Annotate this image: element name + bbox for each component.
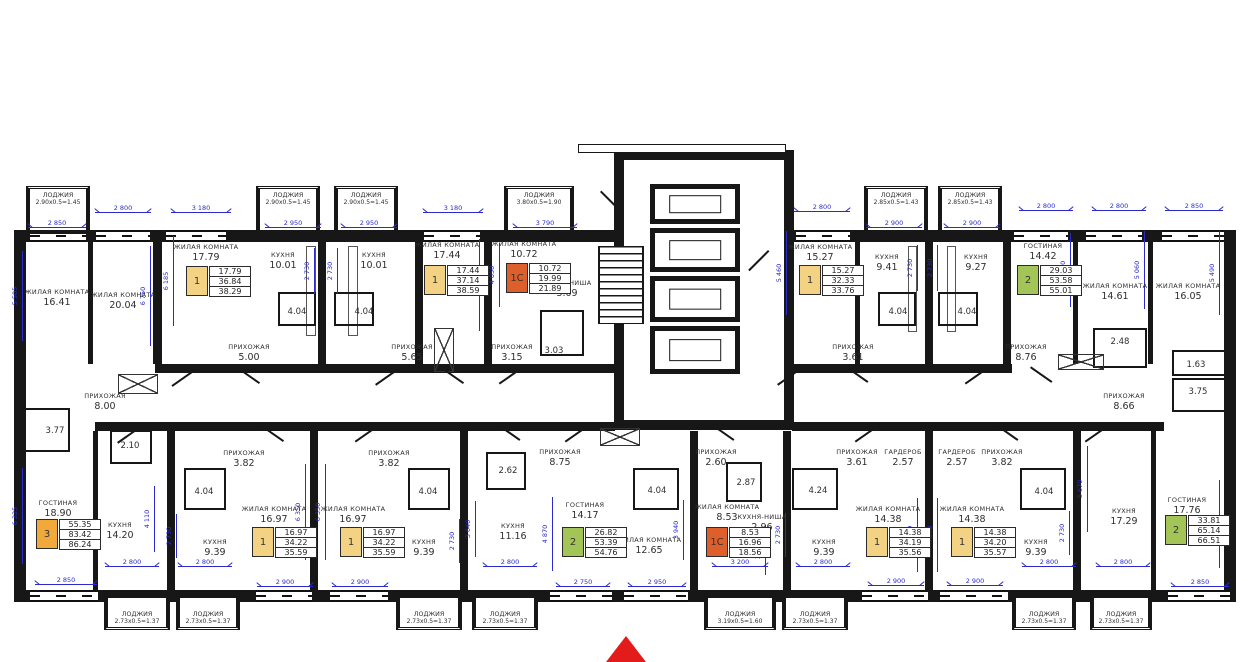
room-label: КУХНЯ11.16: [499, 522, 526, 542]
room-name: ПРИХОЖАЯ: [695, 448, 737, 456]
apartment-info-badge: 117.4437.1438.59: [424, 265, 489, 295]
dimension-line: 2 900: [332, 586, 388, 587]
room-label: ПРИХОЖАЯ3.61: [832, 343, 874, 363]
room-area: 14.61: [1083, 291, 1148, 302]
apartment-info-badge: 116.9734.2235.59: [252, 527, 317, 557]
area-value: 35.59: [275, 547, 317, 558]
room-name: ЖИЛАЯ КОМНАТА: [1083, 282, 1148, 290]
room-label: ПРИХОЖАЯ3.82: [223, 449, 265, 469]
room-name: ЖИЛАЯ КОМНАТА: [695, 503, 760, 511]
dimension-line: 3 180: [171, 212, 231, 213]
dimension-line: 2 900: [947, 585, 1003, 586]
dimension-line: 2 950: [265, 227, 321, 228]
room-label: ПРИХОЖАЯ8.75: [539, 448, 581, 468]
dimension-label: 5 670: [1076, 480, 1084, 499]
loggia-label: ЛОДЖИЯ2.85x0.5=1.43: [868, 192, 924, 206]
dimension-line: 3 940: [683, 500, 684, 560]
room-label: 2.10: [121, 441, 140, 451]
loggia-label: ЛОДЖИЯ2.85x0.5=1.43: [942, 192, 998, 206]
dimension-label: 2 730: [303, 262, 311, 281]
room-area: 4.04: [648, 486, 667, 496]
apartment-type: 1: [340, 527, 362, 557]
loggia: ЛОДЖИЯ2.73x0.5=1.37: [1012, 594, 1076, 630]
apartment-areas: 29.0353.5855.01: [1040, 265, 1082, 295]
room-name: КУХНЯ: [875, 253, 899, 261]
loggia: ЛОДЖИЯ2.73x0.5=1.37: [472, 594, 538, 630]
room-area: 4.04: [355, 307, 374, 317]
window: [796, 230, 850, 242]
loggia-label: ЛОДЖИЯ3.80x0.5=1.90: [508, 192, 570, 206]
room-name: ЖИЛАЯ КОМНАТА: [1156, 282, 1221, 290]
elevator-equipment: [669, 195, 721, 213]
room-name: КУХНЯ: [106, 521, 133, 529]
room-area: 5.65: [391, 352, 433, 363]
wall: [93, 431, 98, 590]
room-label: ГОСТИНАЯ17.76: [1168, 496, 1207, 516]
window: [862, 590, 928, 602]
apartment-info-badge: 114.3834.1935.56: [866, 527, 931, 557]
room-area: 4.04: [419, 487, 438, 497]
room-name: КУХНЯ: [499, 522, 526, 530]
room-label: ЖИЛАЯ КОМНАТА17.79: [174, 243, 239, 263]
dimension-label: 3 180: [192, 204, 211, 212]
room-area: 4.04: [288, 307, 307, 317]
window: [256, 590, 312, 602]
room-area: 1.63: [1187, 360, 1206, 370]
room-area: 9.39: [1024, 547, 1048, 558]
area-value: 33.76: [822, 285, 864, 296]
area-value: 35.56: [889, 547, 931, 558]
dimension-label: 2 900: [887, 577, 906, 585]
apartment-type: 1: [424, 265, 446, 295]
dimension-line: 2 950: [628, 586, 686, 587]
apartment-areas: 17.4437.1438.59: [447, 265, 489, 295]
wall: [792, 422, 1164, 431]
dimension-line: 2 800: [178, 566, 232, 567]
room-label: ЖИЛАЯ КОМНАТА20.04: [91, 291, 156, 311]
room-label: 2.62: [499, 466, 518, 476]
door-swing: [748, 250, 769, 271]
window: [166, 230, 226, 242]
room-name: ПРИХОЖАЯ: [491, 343, 533, 351]
room-name: ЖИЛАЯ КОМНАТА: [174, 243, 239, 251]
wardrobe-symbol: [434, 328, 454, 372]
apartment-areas: 17.7936.8438.29: [209, 266, 251, 296]
room-name: КУХНЯ: [812, 538, 836, 546]
wardrobe-symbol: [1058, 354, 1104, 370]
dimension-label: 6 325: [11, 507, 19, 526]
room-label: КУХНЯ14.20: [106, 521, 133, 541]
dimension-label: 2 800: [1110, 202, 1129, 210]
window: [1086, 230, 1142, 242]
apartment-info-badge: 229.0353.5855.01: [1017, 265, 1082, 295]
apartment-areas: 10.7219.9921.89: [529, 263, 571, 293]
room-area: 16.41: [25, 297, 90, 308]
room-area: 3.82: [981, 457, 1023, 468]
room-name: ЖИЛАЯ КОМНАТА: [492, 240, 557, 248]
dimension-label: 2 900: [963, 219, 982, 227]
room-label: ПРИХОЖАЯ5.00: [228, 343, 270, 363]
dimension-label: 3 180: [444, 204, 463, 212]
room-area: 10.01: [269, 260, 296, 271]
room-label: 4.04: [958, 307, 977, 317]
apartment-areas: 14.3834.1935.56: [889, 527, 931, 557]
room-name: КУХНЯ: [964, 253, 988, 261]
dimension-label: 2 750: [574, 578, 593, 586]
window: [940, 590, 1008, 602]
room-area: 2.87: [737, 478, 756, 488]
apartment-type: 1: [186, 266, 208, 296]
room-name: ГАРДЕРОБ: [938, 448, 975, 456]
room-name: КУХНЯ: [203, 538, 227, 546]
room-area: 20.04: [91, 300, 156, 311]
loggia-label: ЛОДЖИЯ2.73x0.5=1.37: [400, 611, 458, 625]
room-area: 4.04: [195, 487, 214, 497]
room-area: 2.48: [1111, 337, 1130, 347]
apartment-areas: 16.9734.2235.59: [363, 527, 405, 557]
room-label: 4.04: [195, 487, 214, 497]
dimension-label: 2 900: [351, 578, 370, 586]
dimension-line: 2 900: [944, 227, 1000, 228]
window: [1162, 230, 1224, 242]
room-label: ЖИЛАЯ КОМНАТА15.27: [788, 243, 853, 263]
apartment-info-badge: 233.8165.1466.51: [1165, 515, 1230, 545]
wall: [1073, 242, 1078, 364]
room-area: 9.39: [203, 547, 227, 558]
room-area: 8.76: [1005, 352, 1047, 363]
loggia-label: ЛОДЖИЯ2.90x0.5=1.45: [260, 192, 316, 206]
room-area: 9.27: [964, 262, 988, 273]
room-label: ЖИЛАЯ КОМНАТА14.38: [856, 505, 921, 525]
dimension-line: 2 900: [257, 586, 313, 587]
dimension-line: 2 850: [1171, 586, 1229, 587]
dimension-line: 2 850: [1165, 210, 1223, 211]
room-label: 4.24: [809, 486, 828, 496]
room-name: ПРИХОЖАЯ: [539, 448, 581, 456]
room-name: ЖИЛАЯ КОМНАТА: [321, 505, 386, 513]
room-label: ПРИХОЖАЯ2.60: [695, 448, 737, 468]
loggia-label: ЛОДЖИЯ3.19x0.5=1.60: [708, 611, 772, 625]
room-name: ЖИЛАЯ КОМНАТА: [788, 243, 853, 251]
window: [96, 230, 150, 242]
room-name: ГОСТИНАЯ: [1024, 242, 1063, 250]
dimension-line: 2 750: [556, 586, 610, 587]
apartment-areas: 14.3834.2035.57: [974, 527, 1016, 557]
dimension-line: 2 800: [483, 566, 537, 567]
dimension-line: 2 900: [868, 585, 924, 586]
dimension-line: 2 800: [796, 566, 850, 567]
room-area: 9.39: [812, 547, 836, 558]
room-label: ПРИХОЖАЯ8.00: [84, 392, 126, 412]
dimension-label: 2 850: [1185, 202, 1204, 210]
dimension-label: 2 730: [165, 527, 173, 546]
loggia-label: ЛОДЖИЯ2.73x0.5=1.37: [786, 611, 844, 625]
room-label: КУХНЯ17.29: [1110, 507, 1137, 527]
area-value: 35.59: [363, 547, 405, 558]
dimension-line: 2 900: [866, 227, 922, 228]
room-area: 11.16: [499, 531, 526, 542]
room-label: ПРИХОЖАЯ3.82: [981, 448, 1023, 468]
room-name: КУХНЯ: [360, 251, 387, 259]
room-area: 16.05: [1156, 291, 1221, 302]
window: [550, 590, 612, 602]
room-label: ГОСТИНАЯ14.17: [566, 501, 605, 521]
staircase: [598, 246, 644, 324]
room-area: 18.90: [39, 508, 78, 519]
room-area: 3.03: [545, 346, 564, 356]
apartment-type: 1: [866, 527, 888, 557]
dimension-label: 5 505: [11, 287, 19, 306]
room-label: КУХНЯ9.39: [412, 538, 436, 558]
dimension-line: 2 730: [314, 248, 315, 294]
room-area: 16.97: [242, 514, 307, 525]
loggia-label: ЛОДЖИЯ2.73x0.5=1.37: [1094, 611, 1148, 625]
room-label: ПРИХОЖАЯ8.66: [1103, 392, 1145, 412]
dimension-label: 2 950: [360, 219, 379, 227]
dimension-label: 2 800: [1037, 202, 1056, 210]
area-value: 55.01: [1040, 285, 1082, 296]
room-area: 17.44: [415, 250, 480, 261]
room-name: ПРИХОЖАЯ: [223, 449, 265, 457]
room-name: ПРИХОЖАЯ: [391, 343, 433, 351]
apartment-type: 2: [1017, 265, 1039, 295]
room-area: 14.42: [1024, 251, 1063, 262]
apartment-info-badge: 226.8253.3954.76: [562, 527, 627, 557]
area-value: 38.29: [209, 286, 251, 297]
dimension-line: 3 180: [423, 212, 483, 213]
loggia: ЛОДЖИЯ2.73x0.5=1.37: [104, 594, 170, 630]
wall: [460, 431, 468, 590]
wall: [1224, 230, 1236, 602]
room-label: ЖИЛАЯ КОМНАТА16.97: [242, 505, 307, 525]
room-label: КУХНЯ9.39: [203, 538, 227, 558]
room-area: 16.97: [321, 514, 386, 525]
apartment-areas: 55.3583.4286.24: [59, 519, 101, 549]
room-label: ЖИЛАЯ КОМНАТА14.38: [940, 505, 1005, 525]
dimension-label: 2 730: [906, 259, 914, 278]
window: [1168, 590, 1230, 602]
dimension-line: 3 200: [712, 566, 768, 567]
room-label: ЖИЛАЯ КОМНАТА16.05: [1156, 282, 1221, 302]
window: [1014, 230, 1068, 242]
loggia-label: ЛОДЖИЯ2.90x0.5=1.45: [338, 192, 394, 206]
room-name: ЖИЛАЯ КОМНАТА: [242, 505, 307, 513]
apartment-info-badge: 355.3583.4286.24: [36, 519, 101, 549]
dimension-line: 2 800: [1096, 566, 1150, 567]
room-area: 15.27: [788, 252, 853, 263]
room-label: ПРИХОЖАЯ5.65: [391, 343, 433, 363]
apartment-areas: 8.5316.9618.56: [729, 527, 771, 557]
dimension-line: 3 790: [513, 227, 577, 228]
elevator-shaft: [650, 228, 740, 272]
loggia-label: ЛОДЖИЯ2.73x0.5=1.37: [108, 611, 166, 625]
area-value: 86.24: [59, 539, 101, 550]
room-area: 14.17: [566, 510, 605, 521]
room-label: 4.04: [1035, 487, 1054, 497]
loggia: ЛОДЖИЯ3.19x0.5=1.60: [704, 594, 776, 630]
dimension-line: 4 110: [154, 486, 155, 552]
room-name: КУХНЯ-НИША: [738, 513, 787, 521]
room-area: 8.66: [1103, 401, 1145, 412]
room-label: ГАРДЕРОБ2.57: [938, 448, 975, 468]
window: [330, 590, 388, 602]
loggia-label: ЛОДЖИЯ2.90x0.5=1.45: [30, 192, 86, 206]
room-area: 2.60: [695, 457, 737, 468]
room-name: ГОСТИНАЯ: [1168, 496, 1207, 504]
room-area: 10.01: [360, 260, 387, 271]
room-name: КУХНЯ: [269, 251, 296, 259]
room-label: 1.63: [1187, 360, 1206, 370]
dimension-label: 2 850: [1191, 578, 1210, 586]
dimension-label: 6 185: [162, 272, 170, 291]
dimension-line: 2 730: [1069, 511, 1070, 555]
dimension-line: 2 800: [1019, 210, 1073, 211]
dimension-line: 2 730: [917, 245, 918, 291]
room-label: ЖИЛАЯ КОМНАТА16.41: [25, 288, 90, 308]
room-label: ГОСТИНАЯ18.90: [39, 499, 78, 519]
room-name: ПРИХОЖАЯ: [836, 448, 878, 456]
dimension-label: 2 800: [813, 203, 832, 211]
dimension-line: 2 850: [28, 227, 86, 228]
dimension-label: 2 800: [114, 204, 133, 212]
dimension-line: 5 490: [1219, 231, 1220, 315]
dimension-line: 4 870: [552, 497, 553, 571]
window: [624, 590, 688, 602]
dimension-line: 4 870: [937, 498, 938, 572]
room-name: ЖИЛАЯ КОМНАТА: [940, 505, 1005, 513]
dimension-label: 2 730: [448, 532, 456, 551]
apartment-type: 1: [951, 527, 973, 557]
room-area: 17.29: [1110, 516, 1137, 527]
wall: [167, 431, 175, 590]
room-area: 3.75: [1189, 387, 1208, 397]
room-area: 2.57: [938, 457, 975, 468]
dimension-line: 2 800: [1092, 210, 1146, 211]
room-label: ЖИЛАЯ КОМНАТА14.61: [1083, 282, 1148, 302]
room-name: ПРИХОЖАЯ: [368, 449, 410, 457]
dimension-line: 2 730: [937, 245, 938, 291]
wall: [155, 364, 615, 373]
apartment-type: 1С: [706, 527, 728, 557]
room-name: ЖИЛАЯ КОМНАТА: [415, 241, 480, 249]
room-name: ПРИХОЖАЯ: [84, 392, 126, 400]
room-label: КУХНЯ9.39: [812, 538, 836, 558]
dimension-label: 2 800: [501, 558, 520, 566]
dimension-line: 2 800: [95, 212, 151, 213]
room-area: 4.04: [1035, 487, 1054, 497]
wall: [925, 431, 933, 590]
room-area: 3.77: [46, 426, 65, 436]
area-value: 18.56: [729, 547, 771, 558]
room-label: КУХНЯ10.01: [269, 251, 296, 271]
dimension-line: 2 800: [1022, 566, 1076, 567]
apartment-areas: 16.9734.2235.59: [275, 527, 317, 557]
room-label: 4.04: [419, 487, 438, 497]
loggia: ЛОДЖИЯ2.73x0.5=1.37: [176, 594, 240, 630]
room-label: КУХНЯ10.01: [360, 251, 387, 271]
dimension-label: 5 490: [1208, 264, 1216, 283]
door-swing: [1030, 367, 1052, 383]
room-name: ПРИХОЖАЯ: [1005, 343, 1047, 351]
room-area: 5.00: [228, 352, 270, 363]
room-area: 14.20: [106, 530, 133, 541]
apartment-type: 3: [36, 519, 58, 549]
room-label: КУХНЯ9.39: [1024, 538, 1048, 558]
elevator-cabin: [669, 339, 721, 361]
dimension-label: 2 800: [1114, 558, 1133, 566]
roof-parapet-outline: [578, 144, 786, 153]
apartment-info-badge: 1С10.7219.9921.89: [506, 263, 571, 293]
room-name: ПРИХОЖАЯ: [832, 343, 874, 351]
loggia-label: ЛОДЖИЯ2.73x0.5=1.37: [476, 611, 534, 625]
room-label: ПРИХОЖАЯ3.82: [368, 449, 410, 469]
room-name: ЖИЛАЯ КОМНАТА: [856, 505, 921, 513]
apartment-info-badge: 114.3834.2035.57: [951, 527, 1016, 557]
room-area: 9.41: [875, 262, 899, 273]
loggia: ЛОДЖИЯ2.73x0.5=1.37: [782, 594, 848, 630]
elevator-shaft: [650, 326, 740, 374]
dimension-label: 2 850: [48, 219, 67, 227]
room-name: ГОСТИНАЯ: [39, 499, 78, 507]
dimension-line: 2 800: [105, 566, 159, 567]
dimension-line: 2 950: [341, 227, 397, 228]
apartment-type: 1: [799, 265, 821, 295]
apartment-info-badge: 1С8.5316.9618.56: [706, 527, 771, 557]
dimension-label: 2 730: [1058, 524, 1066, 543]
dimension-label: 5 060: [1133, 261, 1141, 280]
area-value: 21.89: [529, 283, 571, 294]
area-value: 54.76: [585, 547, 627, 558]
wall: [95, 422, 615, 431]
room-name: КУХНЯ: [412, 538, 436, 546]
room-area: 3.82: [223, 458, 265, 469]
apartment-type: 2: [1165, 515, 1187, 545]
apartment-info-badge: 115.2732.3333.76: [799, 265, 864, 295]
room-name: КУХНЯ: [1110, 507, 1137, 515]
room-name: КУХНЯ: [1024, 538, 1048, 546]
wall: [1151, 431, 1156, 590]
dimension-line: 2 800: [794, 211, 850, 212]
elevator-machine-room: [650, 184, 740, 224]
dimension-label: 2 950: [648, 578, 667, 586]
area-value: 66.51: [1188, 535, 1230, 546]
wall: [318, 242, 326, 364]
room-label: 2.87: [737, 478, 756, 488]
dimension-label: 5 460: [775, 264, 783, 283]
room-area: 4.04: [958, 307, 977, 317]
dimension-label: 3 640: [464, 520, 472, 539]
room-name: ЖИЛАЯ КОМНАТА: [91, 291, 156, 299]
room-name: ПРИХОЖАЯ: [228, 343, 270, 351]
wall: [783, 431, 791, 590]
wall: [1148, 242, 1153, 364]
dimension-label: 4 050: [488, 266, 496, 285]
dimension-line: 6 325: [22, 468, 23, 564]
apartment-areas: 33.8165.1466.51: [1188, 515, 1230, 545]
room-area: 2.57: [884, 457, 921, 468]
room-area: 8.00: [84, 401, 126, 412]
room-area: 3.82: [368, 458, 410, 469]
loggia: ЛОДЖИЯ2.73x0.5=1.37: [396, 594, 462, 630]
room-area: 17.79: [174, 252, 239, 263]
apartment-areas: 15.2732.3333.76: [822, 265, 864, 295]
dimension-line: 5 505: [22, 251, 23, 341]
dimension-label: 4 110: [143, 510, 151, 529]
room-label: 4.04: [889, 307, 908, 317]
wardrobe-symbol: [118, 374, 158, 394]
area-value: 38.59: [447, 285, 489, 296]
room-name: ГОСТИНАЯ: [566, 501, 605, 509]
